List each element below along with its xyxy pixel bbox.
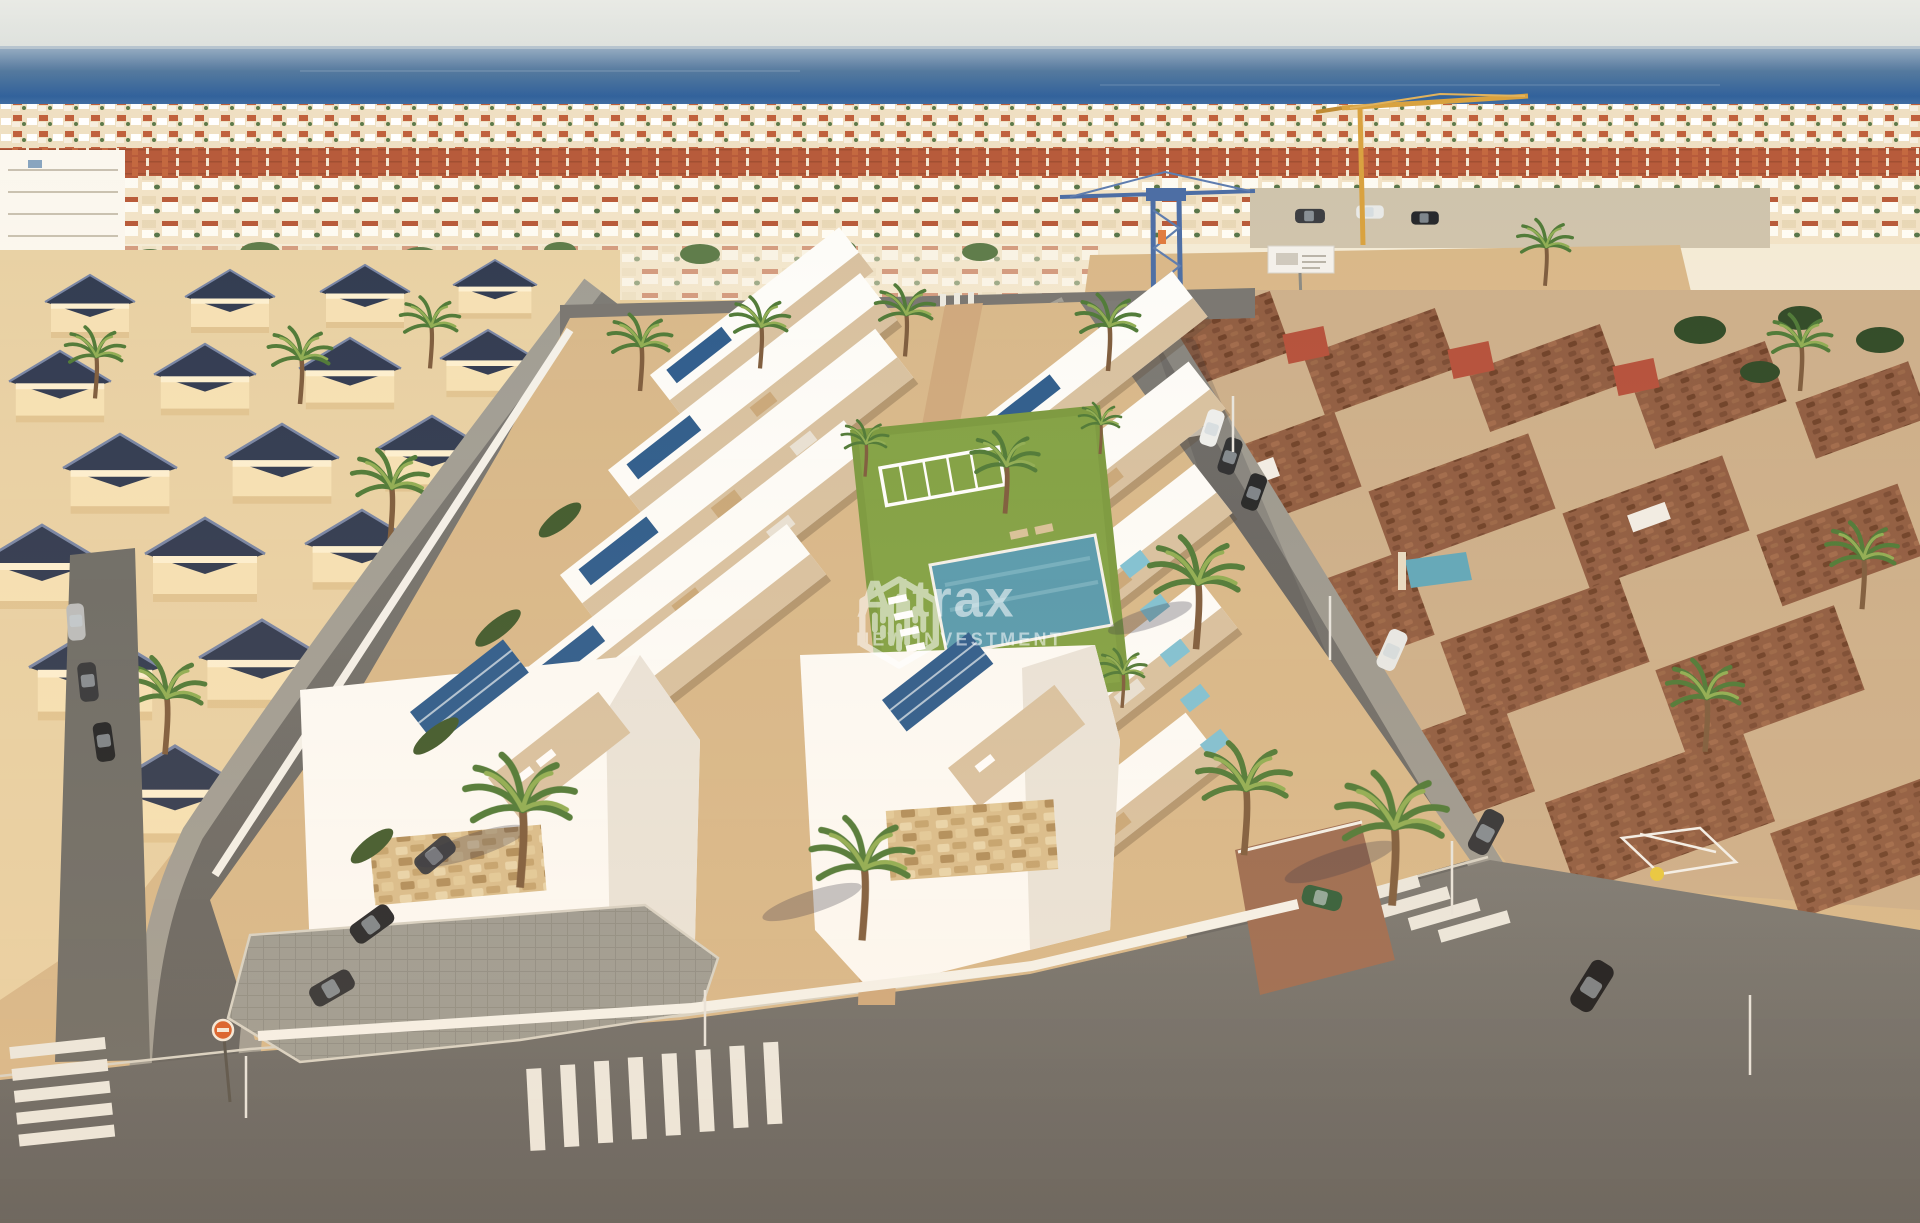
aerial-render-scene: Altrax NEW INVESTMENT (0, 0, 1920, 1223)
scene-svg (0, 0, 1920, 1223)
sunset-tint (0, 0, 1920, 1223)
foreground (0, 0, 1920, 1223)
